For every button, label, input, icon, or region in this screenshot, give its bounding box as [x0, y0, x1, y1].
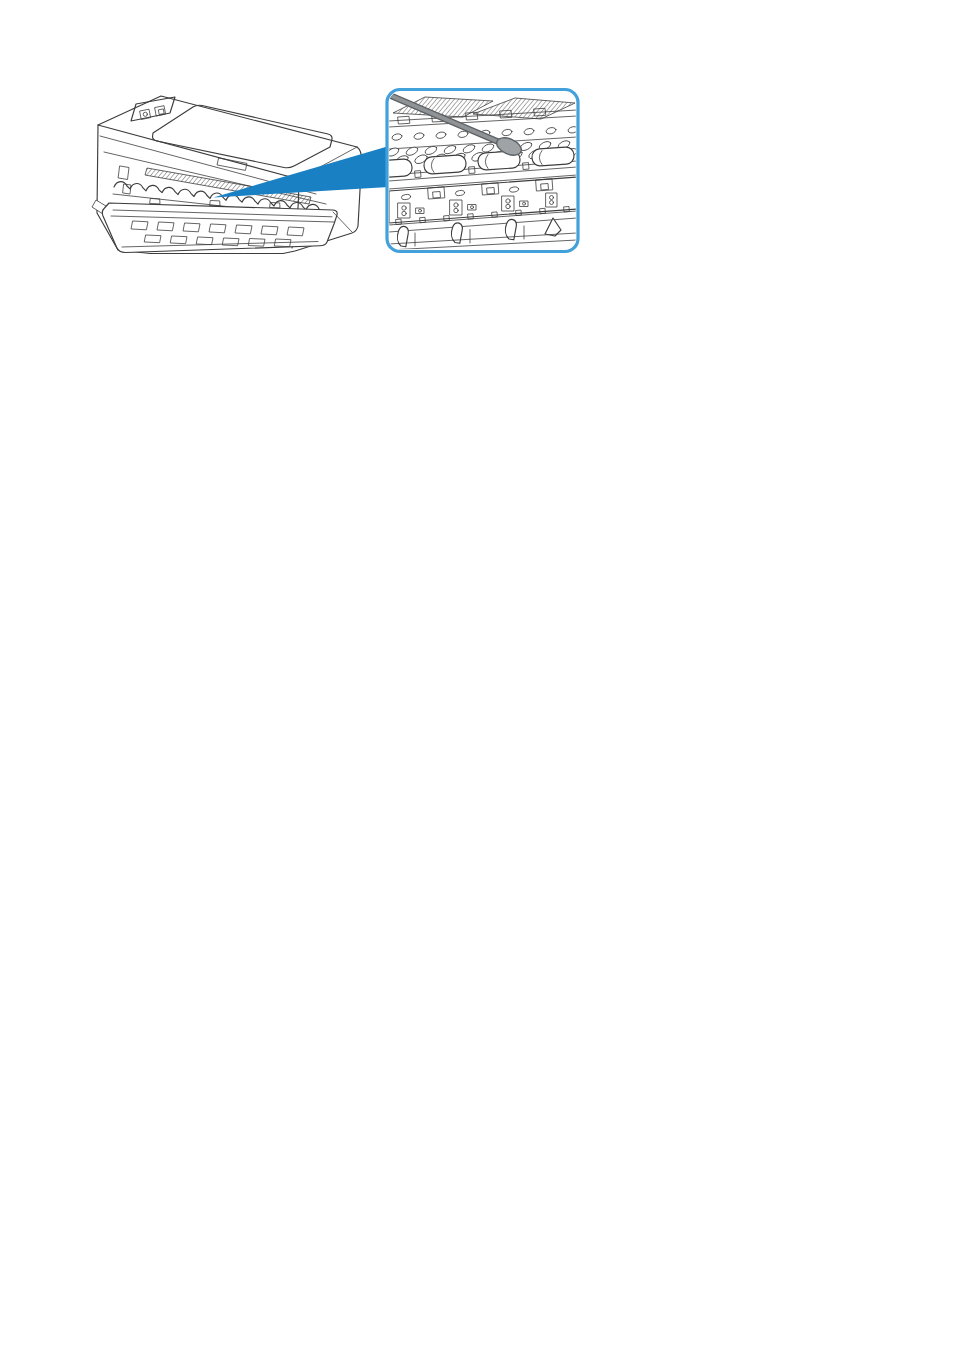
callout-box	[369, 90, 578, 252]
feed-roller	[423, 155, 466, 175]
printer-cleaning-illustration	[0, 0, 954, 1349]
manual-page	[0, 0, 954, 1349]
feed-roller	[531, 147, 574, 167]
